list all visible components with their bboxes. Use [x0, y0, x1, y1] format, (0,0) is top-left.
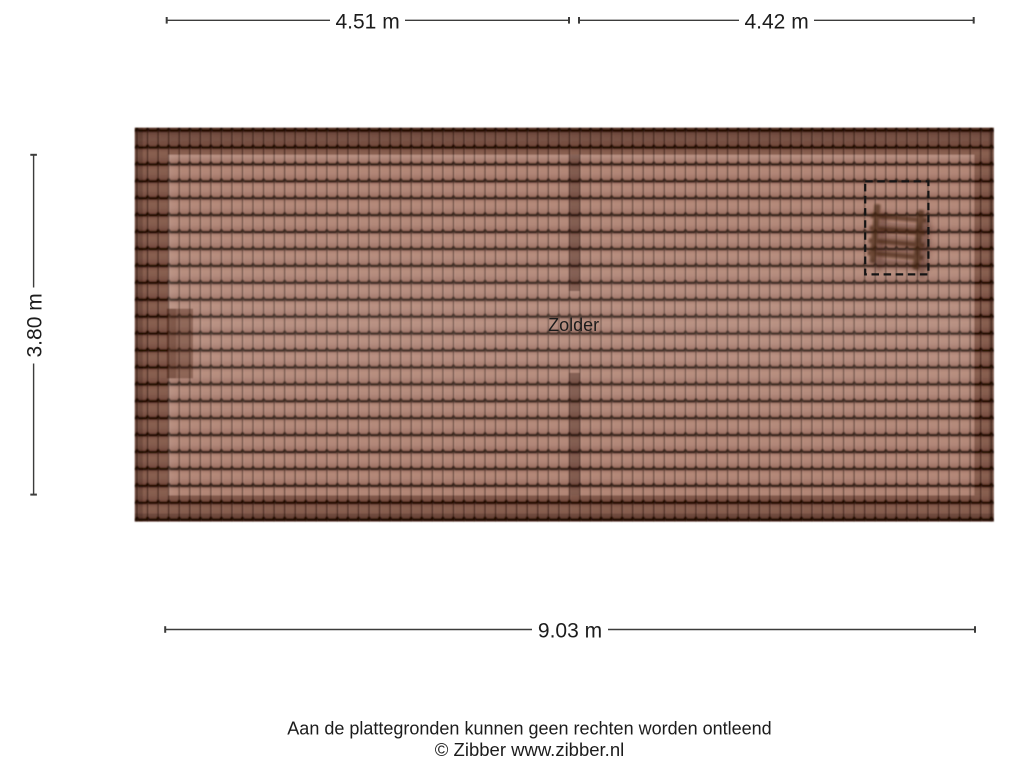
svg-text:© Zibber www.zibber.nl: © Zibber www.zibber.nl	[435, 739, 624, 760]
svg-text:4.51 m: 4.51 m	[335, 10, 399, 33]
svg-text:Aan de plattegronden kunnen ge: Aan de plattegronden kunnen geen rechten…	[287, 719, 771, 739]
svg-text:9.03 m: 9.03 m	[538, 619, 602, 642]
svg-text:Zolder: Zolder	[548, 315, 599, 335]
svg-text:4.42 m: 4.42 m	[744, 10, 808, 33]
svg-text:3.80 m: 3.80 m	[23, 293, 46, 357]
